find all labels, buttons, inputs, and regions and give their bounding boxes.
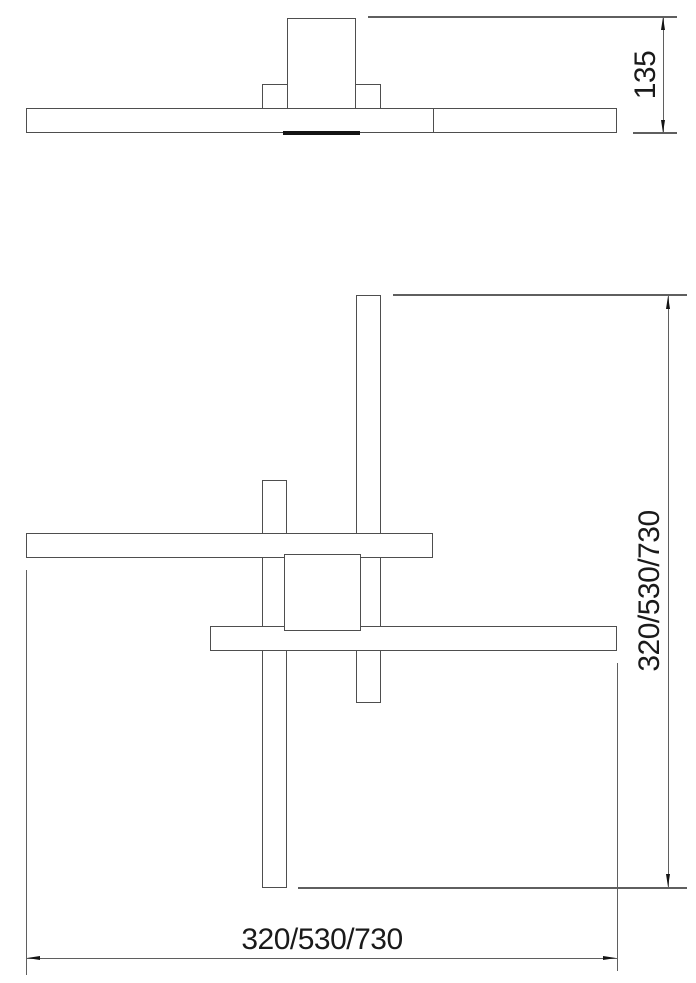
drawing-canvas: 135 320/530/730 320/530/730 xyxy=(0,0,696,983)
dim-depth-line xyxy=(668,295,670,888)
dim-width-arrow-right-icon xyxy=(603,956,616,960)
plan-view: 320/530/730 320/530/730 xyxy=(0,0,696,983)
dim-depth-label: 320/530/730 xyxy=(635,510,665,671)
side-view-bar-profile xyxy=(26,108,617,133)
dim-width-arrow-left-icon xyxy=(27,956,40,960)
dim-width-extension-left-line xyxy=(26,570,28,975)
plan-view-center-canopy-square xyxy=(284,554,361,631)
dim-depth-extension-top-line xyxy=(393,294,687,296)
dim-depth-arrow-down-icon xyxy=(666,874,670,887)
dim-width-label: 320/530/730 xyxy=(241,925,402,955)
side-view-canopy xyxy=(287,18,356,109)
dim-width-line xyxy=(26,958,617,960)
dim-depth-extension-bottom-line xyxy=(298,887,687,889)
dim-width-extension-right-line xyxy=(617,663,619,971)
side-view-diffuser-strip xyxy=(283,131,360,135)
plan-view-horizontal-bar-upper xyxy=(26,533,433,558)
side-view-bar-joint-line xyxy=(433,108,435,133)
dim-depth-arrow-up-icon xyxy=(666,296,670,309)
plan-view-horizontal-bar-lower xyxy=(210,626,617,651)
